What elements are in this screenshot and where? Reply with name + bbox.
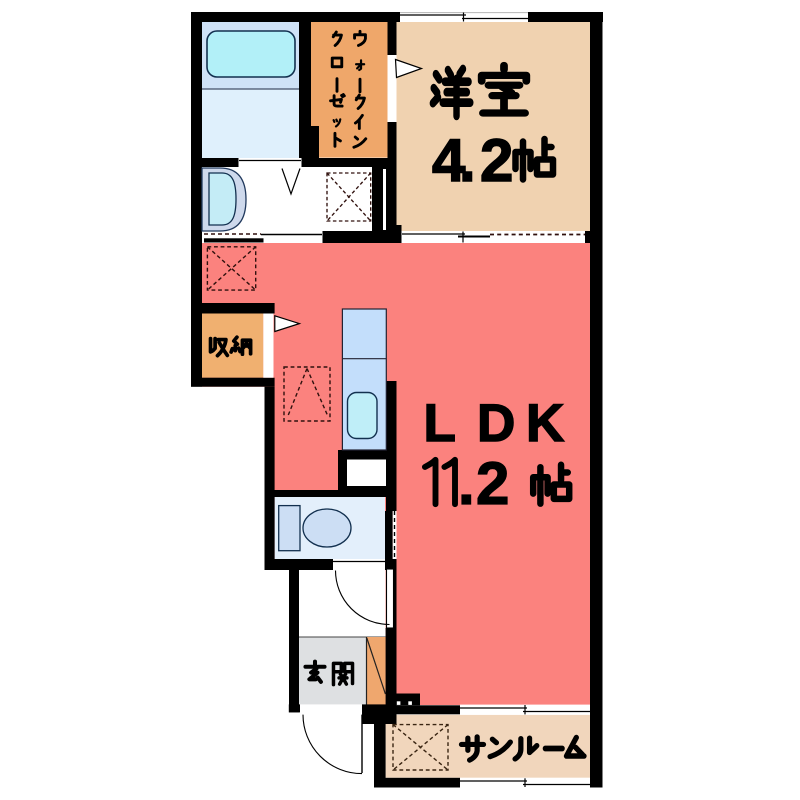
svg-text:2: 2 xyxy=(476,450,509,517)
svg-text:L: L xyxy=(424,394,456,453)
svg-text:2: 2 xyxy=(480,127,513,194)
svg-text:.: . xyxy=(458,450,475,517)
svg-text:D: D xyxy=(477,394,515,453)
svg-text:K: K xyxy=(526,394,564,453)
svg-text:.: . xyxy=(459,127,476,194)
